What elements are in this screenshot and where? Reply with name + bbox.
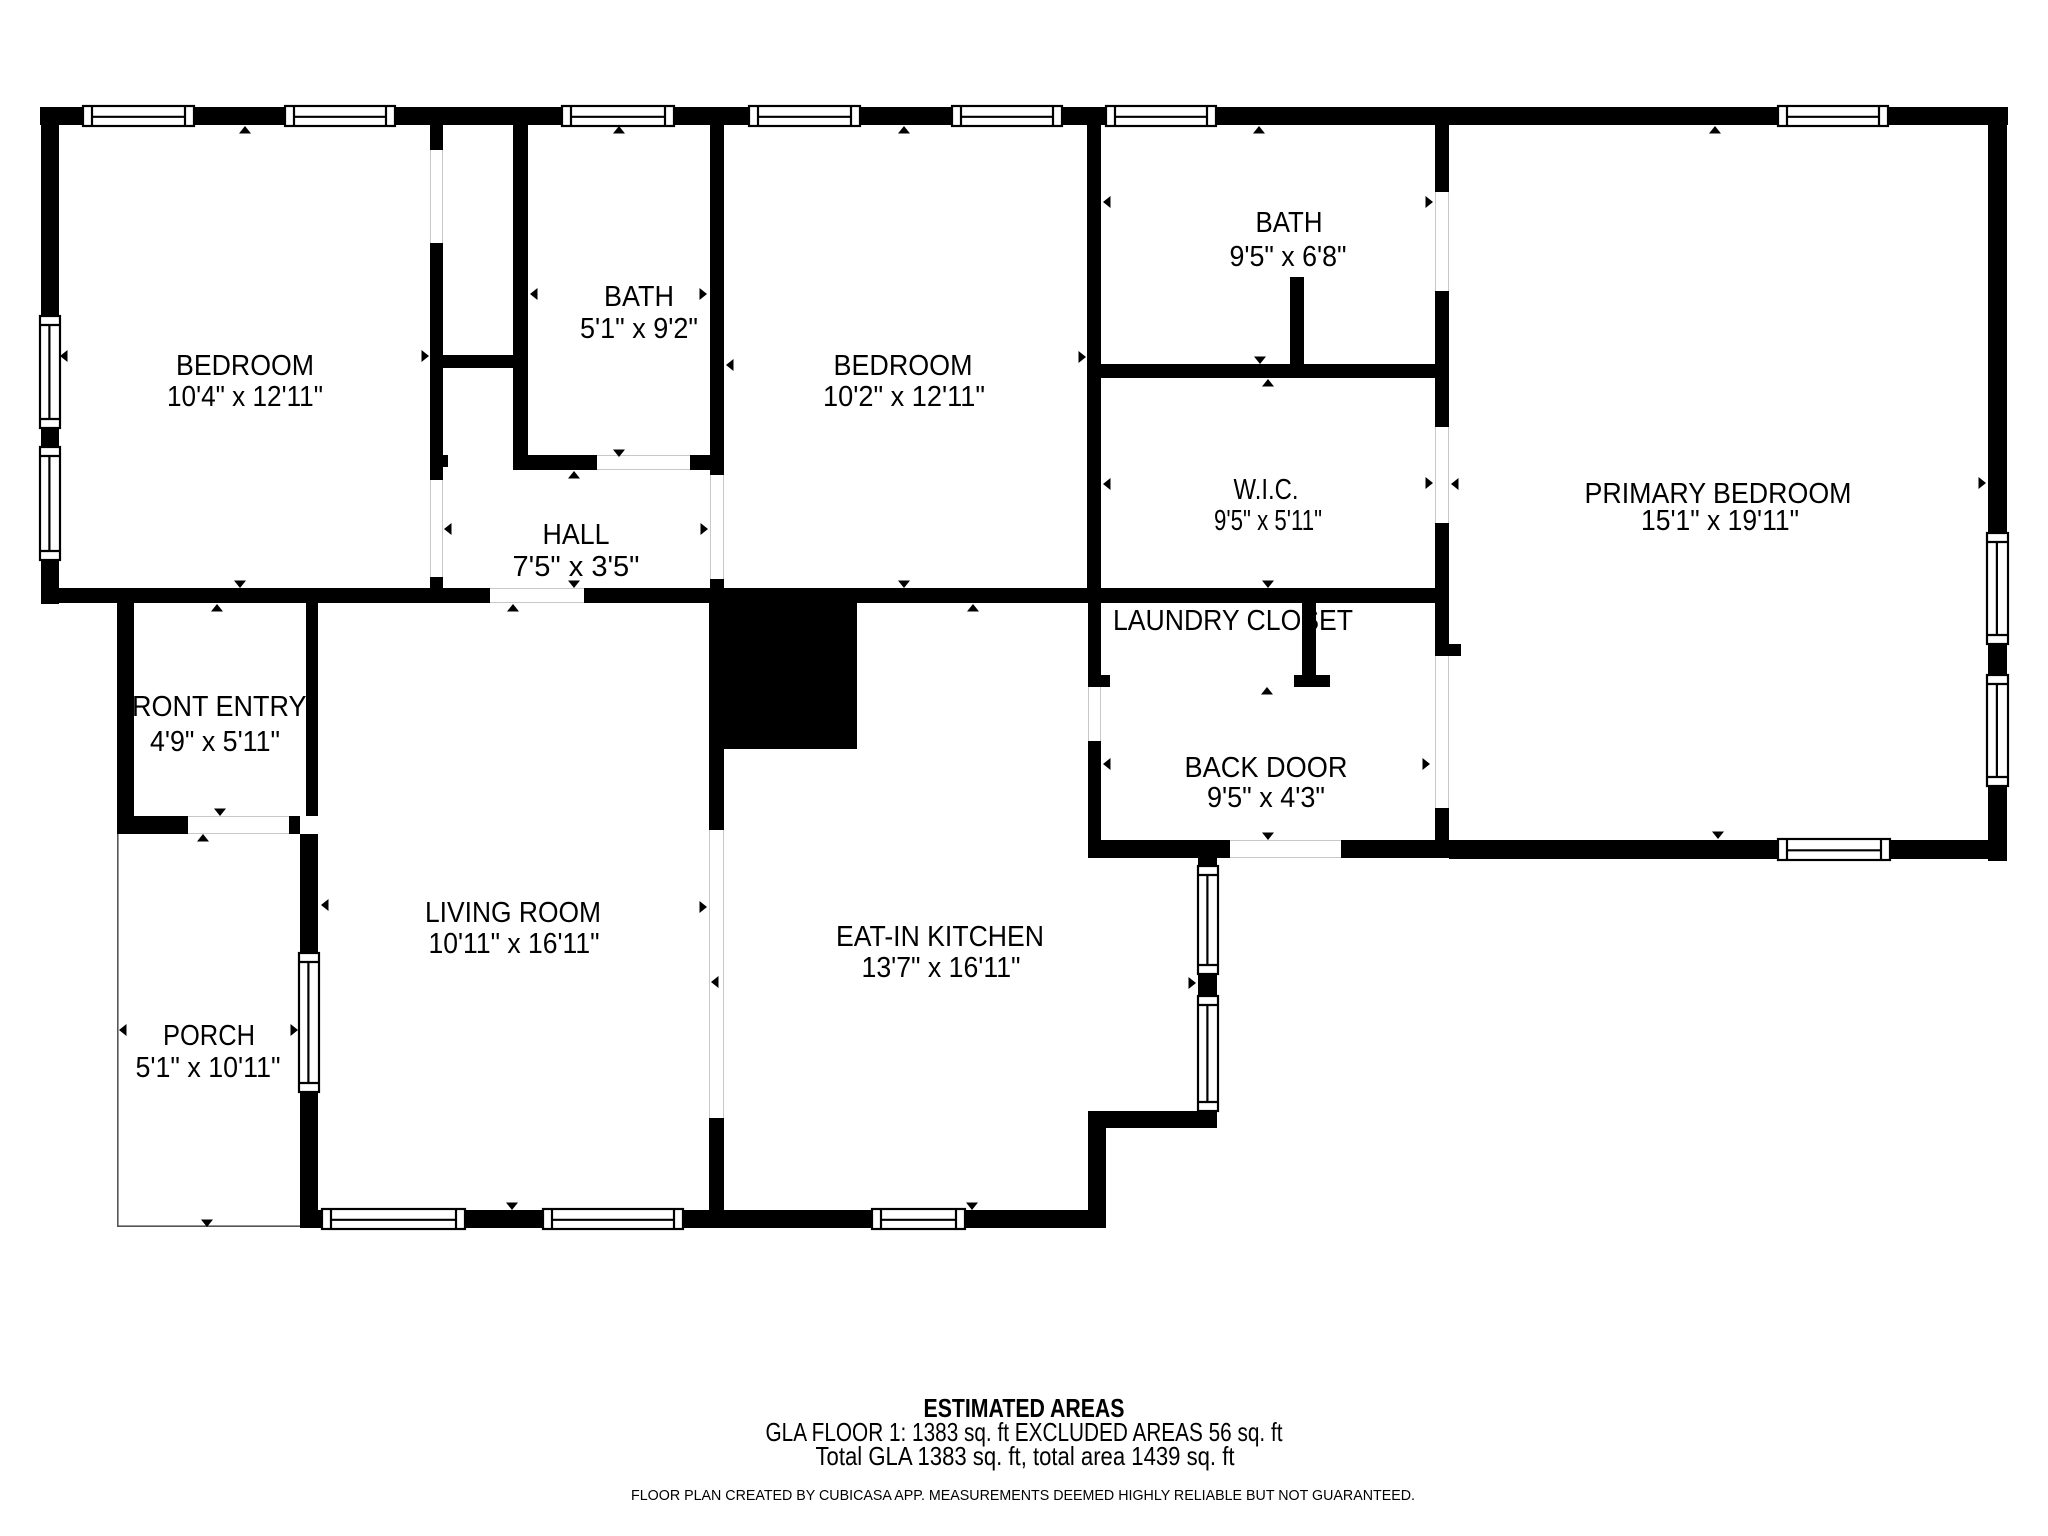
svg-text:LAUNDRY CLOSET: LAUNDRY CLOSET: [1113, 605, 1353, 637]
svg-text:BATH: BATH: [604, 281, 674, 313]
svg-text:FRONT ENTRY: FRONT ENTRY: [116, 691, 307, 723]
svg-text:10'11" x 16'11": 10'11" x 16'11": [429, 928, 600, 960]
svg-text:4'9" x 5'11": 4'9" x 5'11": [150, 726, 280, 758]
svg-text:HALL: HALL: [543, 519, 610, 551]
svg-text:LIVING ROOM: LIVING ROOM: [425, 897, 601, 929]
svg-text:FLOOR PLAN CREATED BY CUBICASA: FLOOR PLAN CREATED BY CUBICASA APP. MEAS…: [631, 1487, 1415, 1504]
svg-text:Total GLA 1383 sq. ft, total a: Total GLA 1383 sq. ft, total area 1439 s…: [816, 1441, 1236, 1471]
svg-text:7'5" x 3'5": 7'5" x 3'5": [513, 551, 640, 583]
svg-text:9'5" x 4'3": 9'5" x 4'3": [1207, 782, 1325, 814]
svg-text:BEDROOM: BEDROOM: [834, 350, 973, 382]
svg-text:BATH: BATH: [1256, 207, 1323, 239]
svg-text:10'4" x 12'11": 10'4" x 12'11": [167, 381, 323, 413]
svg-text:10'2" x 12'11": 10'2" x 12'11": [823, 381, 985, 413]
svg-text:EAT-IN KITCHEN: EAT-IN KITCHEN: [836, 921, 1044, 953]
svg-text:W.I.C.: W.I.C.: [1234, 474, 1299, 506]
svg-text:5'1" x 9'2": 5'1" x 9'2": [580, 313, 698, 345]
svg-text:5'1" x 10'11": 5'1" x 10'11": [136, 1052, 281, 1084]
svg-text:15'1" x 19'11": 15'1" x 19'11": [1641, 505, 1799, 537]
svg-text:9'5" x 5'11": 9'5" x 5'11": [1214, 505, 1322, 537]
svg-text:BACK DOOR: BACK DOOR: [1185, 752, 1348, 784]
svg-text:BEDROOM: BEDROOM: [176, 350, 314, 382]
svg-text:13'7" x 16'11": 13'7" x 16'11": [862, 952, 1021, 984]
svg-text:9'5" x 6'8": 9'5" x 6'8": [1230, 241, 1347, 273]
svg-text:PORCH: PORCH: [163, 1020, 255, 1052]
